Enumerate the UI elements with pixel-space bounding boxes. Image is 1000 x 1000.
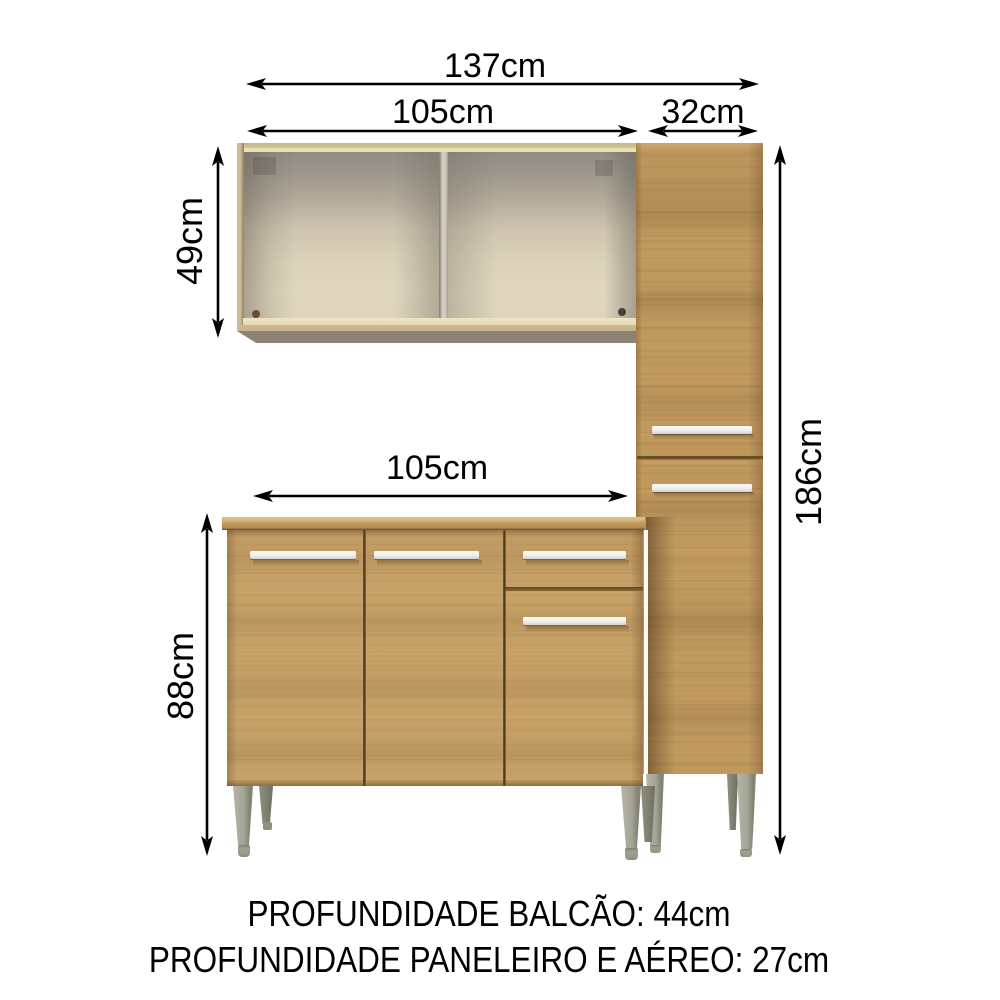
svg-text:105cm: 105cm [392, 93, 494, 131]
svg-text:32cm: 32cm [661, 93, 744, 131]
svg-text:137cm: 137cm [444, 47, 546, 85]
svg-text:88cm: 88cm [160, 632, 201, 720]
svg-text:105cm: 105cm [386, 449, 488, 487]
svg-text:49cm: 49cm [169, 197, 210, 285]
svg-text:186cm: 186cm [788, 418, 829, 526]
